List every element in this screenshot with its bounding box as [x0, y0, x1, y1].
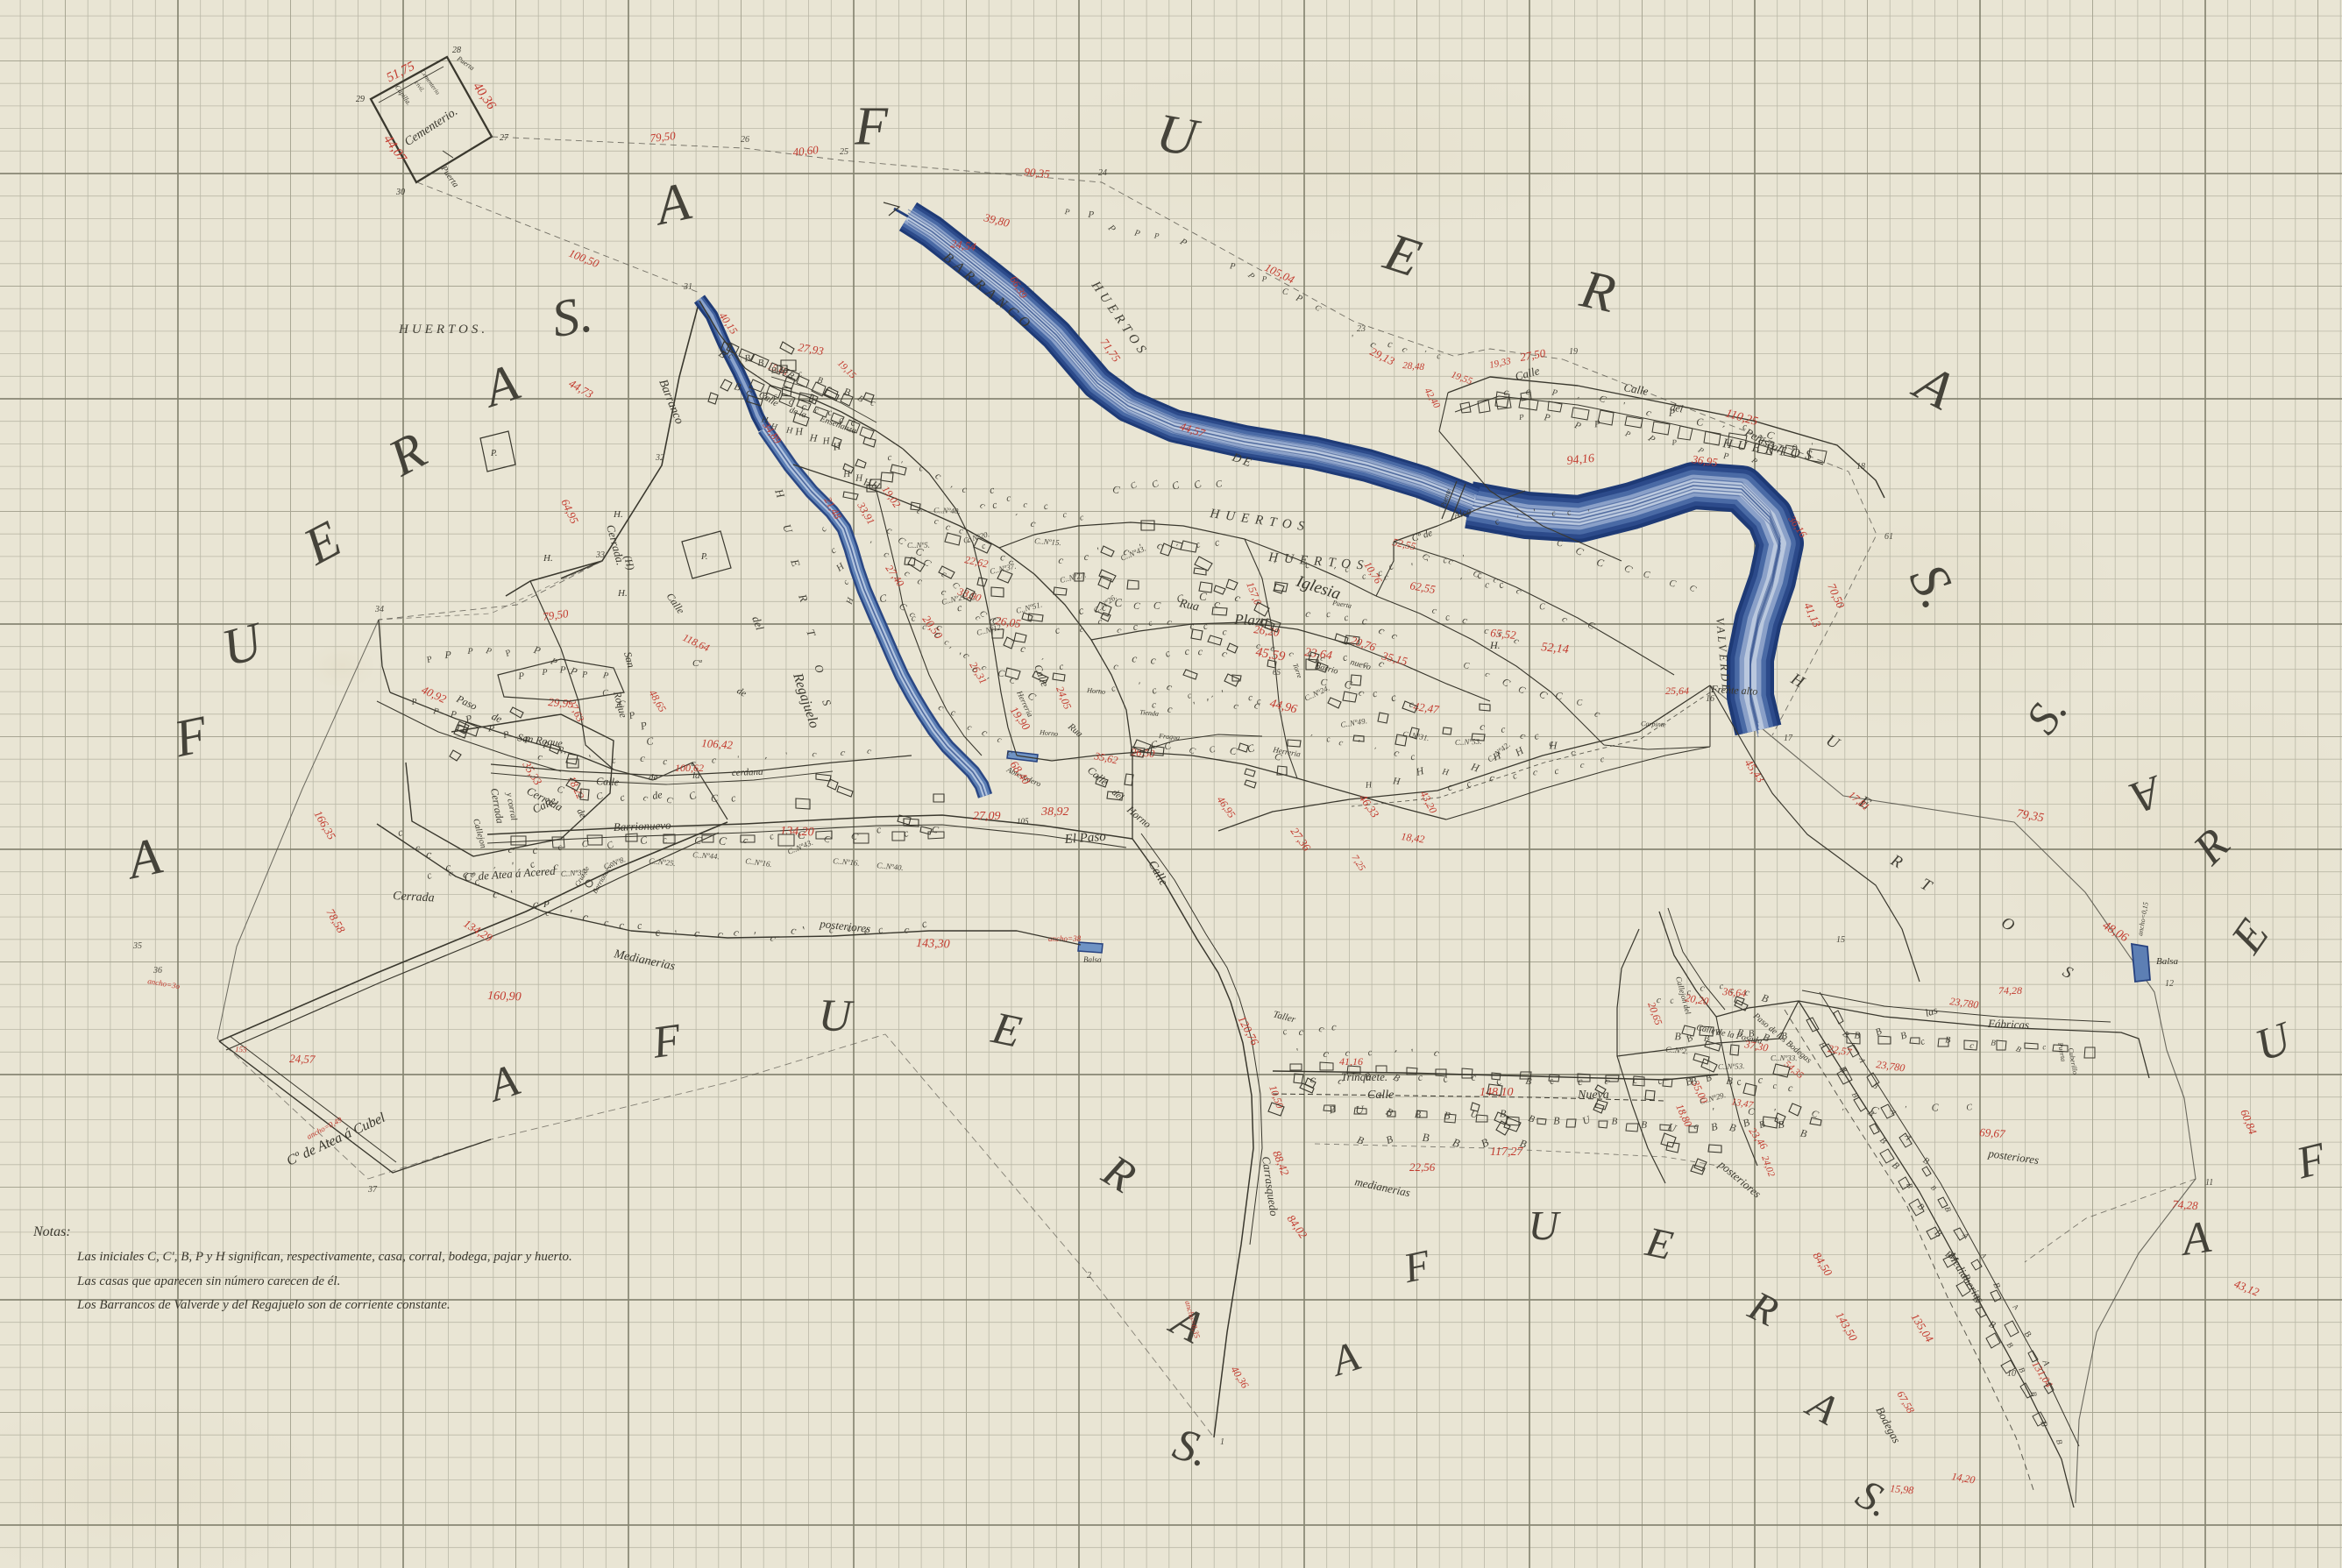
svg-text:74,28: 74,28 [2172, 1197, 2199, 1212]
svg-text:28,48: 28,48 [1402, 360, 1425, 372]
svg-text:P: P [517, 670, 525, 682]
svg-text:Las iniciales C, C', B, P y H: Las iniciales C, C', B, P y H significan… [76, 1250, 572, 1264]
svg-text:24,57: 24,57 [289, 1052, 316, 1066]
svg-text:Calle: Calle [1367, 1089, 1394, 1102]
svg-text:1: 1 [1220, 1437, 1224, 1447]
svg-text:Barrionuevo: Barrionuevo [614, 819, 672, 834]
svg-text:C..Nº40.: C..Nº40. [933, 506, 961, 515]
svg-text:B: B [757, 358, 763, 368]
svg-text:38,92: 38,92 [1040, 805, 1069, 819]
svg-text:Horno: Horno [1086, 686, 1106, 696]
svg-text:Los Barrancos de Valverde y de: Los Barrancos de Valverde y del Regajuel… [76, 1298, 451, 1312]
svg-text:c: c [1152, 699, 1156, 710]
svg-text:P: P [444, 649, 452, 661]
svg-text:B: B [1422, 1131, 1430, 1145]
svg-text:25,64: 25,64 [1665, 685, 1689, 697]
svg-text:61: 61 [1884, 532, 1893, 542]
svg-text:C: C [1696, 416, 1704, 429]
svg-text:27: 27 [500, 133, 509, 143]
svg-text:HUERTOS.: HUERTOS. [398, 323, 488, 337]
svg-text:de: de [649, 772, 658, 783]
svg-text:33: 33 [595, 550, 605, 560]
svg-text:Nueva: Nueva [1577, 1089, 1609, 1102]
svg-text:c: c [1222, 627, 1226, 637]
svg-text:C..Nº5.: C..Nº5. [907, 541, 930, 550]
svg-text:Las casas que aparecen sin núm: Las casas que aparecen sin número carece… [76, 1274, 340, 1288]
svg-text:28: 28 [452, 46, 461, 55]
svg-text:25: 25 [840, 147, 848, 157]
svg-text:C: C [1557, 539, 1563, 549]
svg-text:c: c [1006, 493, 1011, 504]
svg-text:P: P [1260, 274, 1267, 283]
svg-text:C..Nº53.: C..Nº53. [1455, 737, 1482, 747]
svg-text:12: 12 [2165, 979, 2174, 989]
svg-text:U: U [1529, 1203, 1562, 1249]
svg-text:Carpinte: Carpinte [1641, 720, 1666, 728]
svg-text:c: c [1772, 1082, 1777, 1091]
svg-text:C: C [1539, 602, 1546, 612]
svg-text:79,50: 79,50 [649, 129, 677, 145]
svg-text:P: P [1668, 406, 1677, 418]
svg-text:P: P [410, 697, 418, 707]
svg-text:148,10: 148,10 [1480, 1086, 1514, 1099]
svg-text:29: 29 [356, 95, 365, 104]
svg-text:c: c [1758, 1074, 1764, 1086]
svg-text:c: c [663, 756, 667, 767]
svg-text:Balsa: Balsa [1083, 955, 1102, 964]
svg-text:100,62: 100,62 [675, 762, 704, 774]
svg-text:65: 65 [1273, 668, 1281, 677]
svg-text:C: C [602, 688, 609, 698]
svg-text:2: 2 [1087, 1271, 1091, 1281]
svg-text:160,90: 160,90 [487, 990, 522, 1004]
svg-text:15: 15 [1836, 935, 1845, 945]
svg-text:H: H [855, 473, 863, 484]
svg-text:cerdana: cerdana [732, 767, 764, 778]
svg-text:40,60: 40,60 [792, 143, 820, 159]
svg-text:17: 17 [1784, 734, 1793, 743]
svg-text:155: 155 [235, 1045, 247, 1054]
svg-text:B: B [1611, 1117, 1617, 1127]
svg-text:143,30: 143,30 [916, 937, 950, 951]
svg-text:c: c [1362, 614, 1368, 627]
svg-text:P.: P. [700, 552, 707, 562]
svg-text:B: B [1553, 1115, 1560, 1127]
svg-text:c: c [1742, 422, 1747, 432]
svg-text:Fábricas: Fábricas [1987, 1017, 2029, 1032]
svg-text:C: C [1577, 699, 1583, 708]
svg-text:H: H [821, 436, 831, 446]
svg-text:Balsa: Balsa [2156, 956, 2179, 967]
svg-text:23: 23 [1357, 324, 1366, 334]
svg-text:B: B [1414, 1108, 1422, 1120]
svg-text:H.: H. [543, 553, 553, 564]
svg-text:Horno: Horno [1039, 728, 1059, 738]
svg-text:c: c [912, 613, 916, 623]
svg-text:F: F [854, 96, 889, 156]
svg-text:c: c [1248, 692, 1253, 703]
svg-text:32: 32 [655, 453, 664, 463]
svg-text:65,52: 65,52 [1490, 626, 1517, 642]
svg-text:H: H [1549, 739, 1558, 751]
svg-text:C..Nº53.: C..Nº53. [1718, 1061, 1745, 1071]
svg-text:22,56: 22,56 [1409, 1160, 1436, 1174]
svg-text:U: U [818, 990, 855, 1041]
svg-text:B: B [1641, 1119, 1648, 1131]
svg-text:69,67: 69,67 [1979, 1125, 2006, 1140]
svg-text:36: 36 [153, 966, 162, 976]
svg-text:H.: H. [617, 588, 628, 599]
svg-text:C..Nº33.: C..Nº33. [1771, 1054, 1798, 1062]
svg-text:B: B [1675, 1030, 1682, 1042]
svg-text:H.: H. [613, 509, 623, 520]
svg-text:105: 105 [1017, 817, 1029, 826]
svg-text:35: 35 [132, 941, 142, 951]
svg-text:El Paso: El Paso [1063, 830, 1107, 847]
svg-text:P: P [559, 664, 566, 675]
svg-text:H.: H. [1489, 639, 1501, 651]
svg-text:P: P [487, 723, 495, 734]
svg-text:11: 11 [2205, 1178, 2213, 1188]
svg-text:P: P [523, 734, 530, 745]
svg-text:H: H [794, 425, 804, 437]
svg-text:34: 34 [374, 605, 384, 614]
svg-text:15,98: 15,98 [1890, 1482, 1914, 1496]
svg-text:30: 30 [395, 188, 405, 197]
svg-text:B: B [1854, 1031, 1860, 1041]
svg-text:37: 37 [367, 1185, 378, 1195]
svg-text:24: 24 [1098, 168, 1107, 178]
svg-text:c: c [1485, 579, 1490, 590]
svg-text:P: P [1087, 209, 1095, 220]
svg-text:Calle: Calle [596, 775, 620, 788]
svg-text:B: B [1945, 1035, 1950, 1045]
svg-text:Cerrada: Cerrada [393, 890, 435, 905]
svg-text:74,28: 74,28 [1998, 984, 2022, 997]
svg-text:c: c [1189, 621, 1195, 631]
svg-text:31: 31 [683, 282, 692, 292]
svg-text:Notas:: Notas: [32, 1224, 71, 1239]
svg-text:27,09: 27,09 [973, 810, 1001, 823]
svg-text:P: P [1721, 451, 1729, 462]
svg-text:P: P [466, 647, 472, 656]
svg-text:106,42: 106,42 [701, 736, 734, 751]
svg-text:19: 19 [1569, 347, 1578, 357]
svg-text:C..Nº35.: C..Nº35. [560, 868, 587, 878]
svg-text:C: C [1966, 1103, 1973, 1113]
svg-text:P: P [541, 668, 547, 678]
svg-text:Frente alto: Frente alto [1710, 683, 1758, 698]
svg-text:P.: P. [490, 449, 497, 458]
svg-text:P: P [581, 670, 587, 680]
svg-text:26: 26 [741, 135, 749, 145]
svg-text:36,64: 36,64 [1721, 985, 1747, 999]
svg-text:C: C [797, 828, 806, 841]
svg-text:c: c [1501, 724, 1506, 734]
svg-text:Cª: Cª [692, 658, 702, 669]
svg-text:90,35: 90,35 [1024, 165, 1051, 181]
